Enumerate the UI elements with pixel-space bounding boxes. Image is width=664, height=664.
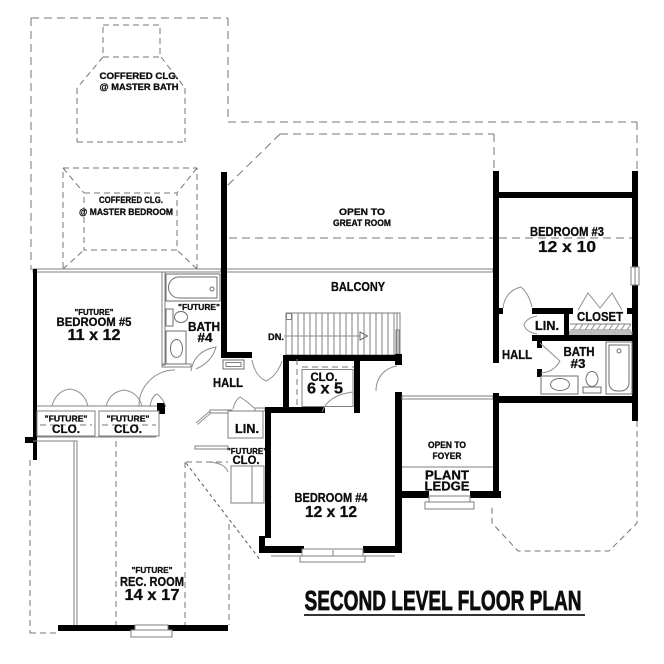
svg-text:HALL: HALL: [502, 348, 532, 362]
svg-text:12 x 12: 12 x 12: [305, 504, 357, 521]
svg-text:CLOSET: CLOSET: [577, 310, 623, 324]
svg-text:14 x 17: 14 x 17: [125, 587, 180, 604]
svg-text:COFFERED CLG.: COFFERED CLG.: [99, 195, 163, 206]
svg-text:@ MASTER BATH: @ MASTER BATH: [100, 82, 179, 93]
svg-text:OPEN TO: OPEN TO: [339, 207, 385, 218]
svg-text:CLO.: CLO.: [233, 453, 260, 467]
svg-text:GREAT ROOM: GREAT ROOM: [333, 218, 391, 229]
svg-text:COFFERED CLG.: COFFERED CLG.: [100, 71, 179, 82]
svg-text:LIN.: LIN.: [235, 422, 259, 436]
svg-text:CLO.: CLO.: [52, 422, 80, 436]
svg-text:FOYER: FOYER: [433, 451, 462, 461]
svg-text:LEDGE: LEDGE: [425, 480, 470, 494]
svg-text:"FUTURE": "FUTURE": [178, 302, 220, 312]
svg-text:@ MASTER BEDROOM: @ MASTER BEDROOM: [79, 207, 173, 218]
svg-text:"FUTURE": "FUTURE": [132, 565, 173, 575]
svg-text:6 x 5: 6 x 5: [307, 381, 343, 398]
svg-text:DN.: DN.: [268, 332, 284, 342]
svg-text:BALCONY: BALCONY: [331, 280, 386, 294]
svg-text:BEDROOM #4: BEDROOM #4: [295, 491, 368, 505]
svg-text:12 x 10: 12 x 10: [538, 239, 596, 256]
svg-text:HALL: HALL: [213, 376, 243, 390]
svg-text:CLO.: CLO.: [114, 422, 142, 436]
svg-text:SECOND LEVEL FLOOR PLAN: SECOND LEVEL FLOOR PLAN: [305, 585, 582, 616]
svg-text:OPEN TO: OPEN TO: [428, 440, 466, 450]
svg-text:BEDROOM #3: BEDROOM #3: [530, 224, 604, 239]
svg-text:LIN.: LIN.: [535, 319, 559, 333]
svg-text:11 x 12: 11 x 12: [68, 327, 121, 344]
svg-text:#4: #4: [198, 331, 213, 345]
svg-text:#3: #3: [571, 357, 586, 371]
